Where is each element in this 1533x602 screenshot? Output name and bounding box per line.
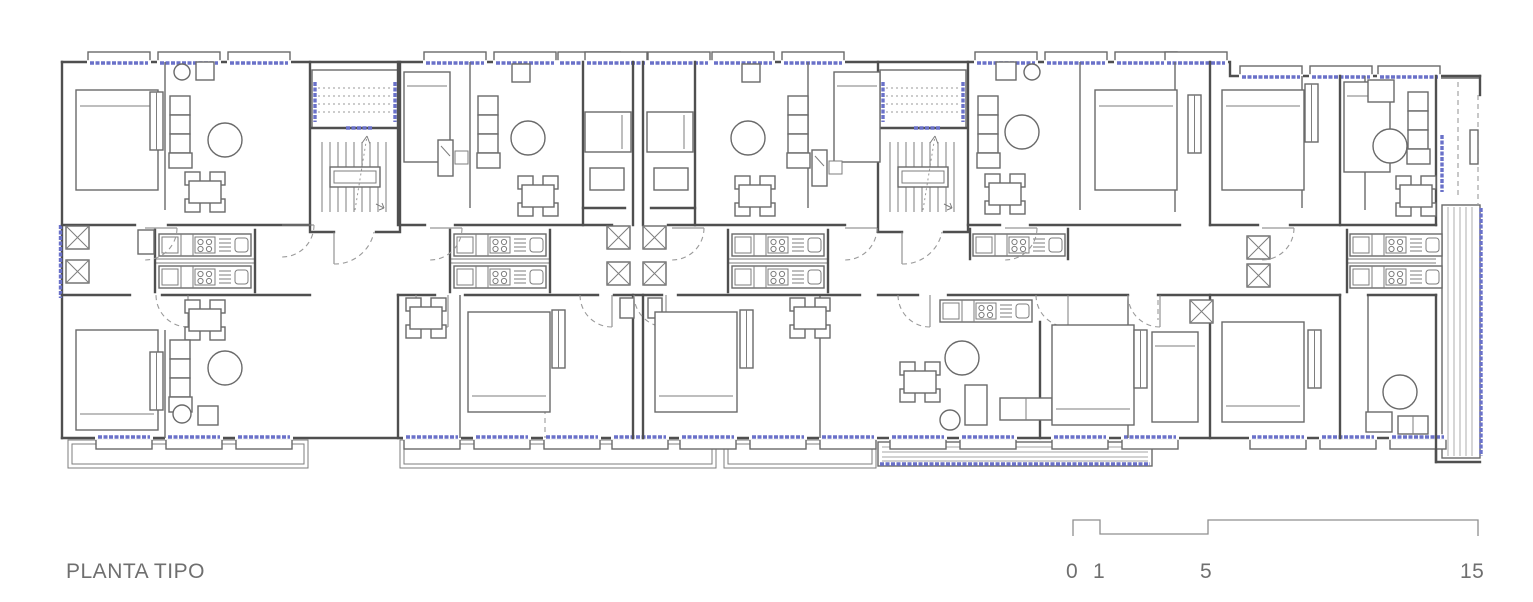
bottom-facade-windows (95, 434, 1447, 449)
stair-core-1 (310, 62, 400, 264)
scale-label-1: 1 (1093, 560, 1105, 584)
right-terrace (1436, 78, 1481, 458)
floor-plan-sheet: PLANTA TIPO 0 1 5 15 (0, 0, 1533, 602)
scale-bar (1073, 520, 1478, 536)
floor-plan-drawing (0, 0, 1533, 602)
stair-core-2 (878, 62, 968, 264)
drawing-title: PLANTA TIPO (66, 560, 205, 584)
scale-label-5: 5 (1200, 560, 1212, 584)
scale-label-0: 0 (1066, 560, 1078, 584)
scale-label-15: 15 (1460, 560, 1484, 584)
